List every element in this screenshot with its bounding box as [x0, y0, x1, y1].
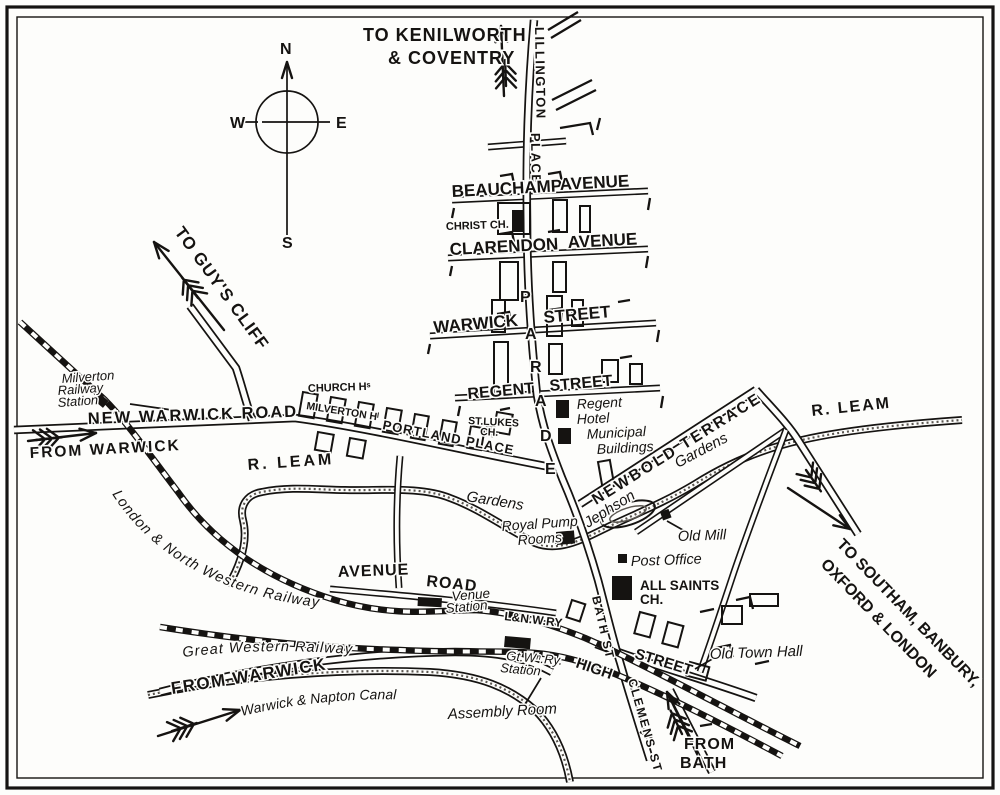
building-block [347, 438, 366, 459]
street-label-church-hill: CHURCH Hˢ [308, 381, 371, 395]
municipal-buildings-block [558, 428, 571, 444]
building-block [580, 206, 590, 232]
street-label-parade-p: P [520, 289, 531, 306]
route-label-from-bath-2: BATH [680, 755, 727, 772]
street-label-new-warwick-road: NEW WARWICK ROAD [88, 403, 299, 428]
route-label-southam-1: TO SOUTHAM, BANBURY, [833, 536, 983, 690]
place-label-all-saints-2: CH. [640, 592, 663, 607]
canal-label: Warwick & Napton Canal [239, 686, 397, 719]
canal-label-text: Warwick & Napton Canal [239, 686, 397, 719]
place-label-christ-church: CHRIST CH. [446, 219, 509, 233]
compass-rose: N W E S [230, 41, 347, 252]
place-label-old-town-hall: Old Town Hall [710, 643, 804, 663]
building-block [630, 364, 642, 384]
street-label-parade-a1: A [525, 326, 537, 343]
railway-label-lnwr-text: London & North Western Railway [109, 487, 321, 611]
route-label-kenilworth-1: TO KENILWORTH [363, 25, 527, 45]
route-label-from-warwick-nw: FROM WARWICK [29, 437, 181, 462]
street-label-parade-e: E [545, 461, 556, 478]
building-block [634, 612, 655, 637]
compass-west: W [230, 115, 246, 132]
building-block [553, 200, 567, 232]
street-label-parade-a2: A [535, 393, 547, 410]
street-label-avenue-1: AVENUE [338, 562, 410, 581]
street-label-parade-r: R [530, 359, 542, 376]
post-office-block [618, 554, 627, 563]
building-block [315, 432, 334, 453]
map-page: N W E S TO KENILWORTH & COVENTRY TO GUY'… [0, 0, 1000, 795]
building-block [662, 622, 683, 647]
route-label-guys-cliff: TO GUY'S CLIFF [171, 223, 273, 353]
avenue-station-block [418, 597, 442, 607]
street-label-clarendon-2: AVENUE [567, 229, 637, 252]
street-label-lillington: LILLINGTON [532, 27, 549, 120]
regent-hotel-block [556, 400, 569, 418]
railway-label-lnwr: London & North Western Railway [109, 487, 321, 611]
place-label-st-lukes-2: CH. [480, 426, 499, 439]
compass-east: E [336, 115, 347, 132]
street-label-parade-d: D [540, 428, 552, 445]
place-label-gwr-station-2: Station [500, 660, 542, 678]
street-label-beauchamp-2: AVENUE [559, 171, 629, 194]
christ-church-block [512, 210, 523, 232]
all-saints-church-block [612, 576, 632, 600]
map-labels: TO KENILWORTH & COVENTRY TO GUY'S CLIFF … [29, 25, 983, 774]
compass-south: S [282, 235, 293, 252]
place-label-milverton-3: Station [57, 392, 98, 410]
place-label-all-saints-1: ALL SAINTS [640, 578, 719, 593]
place-label-post-office: Post Office [631, 552, 702, 570]
river-label-leam-east: R. LEAM [811, 395, 892, 420]
compass-north: N [280, 41, 292, 58]
route-label-kenilworth-2: & COVENTRY [388, 48, 515, 68]
river-label-leam-west: R. LEAM [247, 451, 335, 474]
building-block [500, 262, 518, 300]
place-label-municipal-2: Buildings [596, 438, 654, 457]
route-label-from-bath-1: FROM [684, 736, 735, 753]
place-label-old-mill: Old Mill [678, 527, 728, 545]
building-block [566, 600, 585, 621]
building-block [549, 344, 562, 374]
street-label-regent-1: REGENT [467, 380, 535, 403]
map-canvas: N W E S TO KENILWORTH & COVENTRY TO GUY'… [0, 0, 1000, 795]
building-block [750, 594, 778, 606]
place-label-pump-rooms-2: Rooms [517, 529, 562, 548]
building-block [553, 262, 566, 292]
